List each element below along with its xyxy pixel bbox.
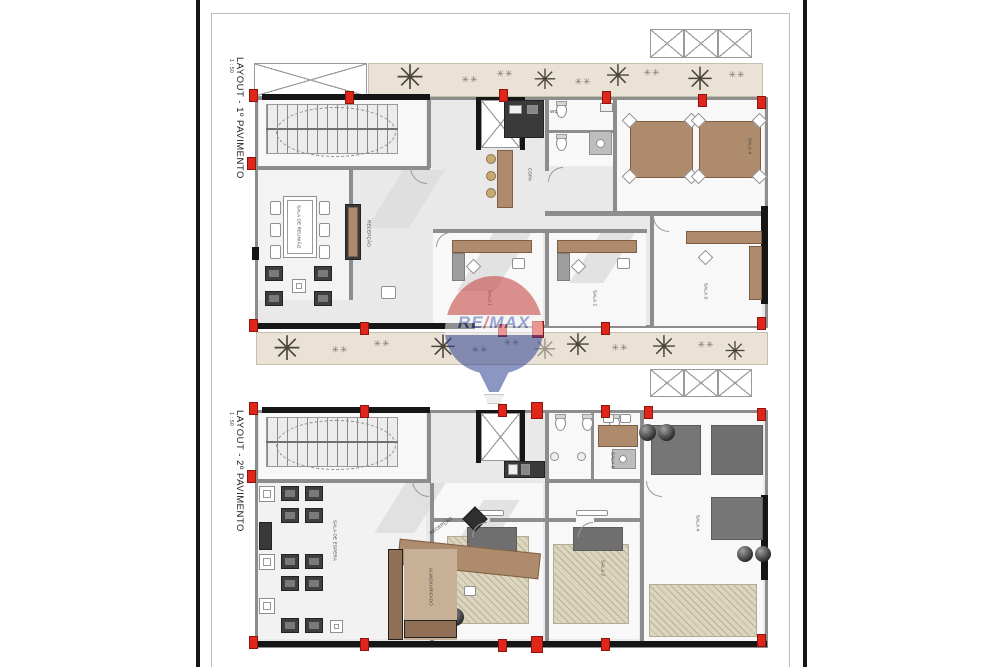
- roof-xbox: [650, 369, 684, 397]
- desk: [749, 246, 762, 300]
- shrub-icons: ✳✳: [461, 76, 478, 85]
- column-marker: [249, 89, 258, 102]
- plan1-title-block: LAYOUT - 1º PAVIMENTO 1 : 50: [228, 57, 245, 179]
- tree-icon: ✳: [687, 63, 714, 95]
- pouf: [737, 546, 753, 562]
- shelf: [576, 510, 608, 516]
- roof-xbox: [650, 29, 684, 58]
- logo-re: RE: [458, 313, 484, 332]
- column-marker: [345, 91, 354, 104]
- chair: [319, 223, 330, 237]
- column-marker: [531, 636, 543, 653]
- room-label: SALA 4: [747, 138, 752, 154]
- tree-icon: ✳: [396, 61, 425, 95]
- chair: [620, 414, 631, 423]
- armchair: [305, 508, 323, 523]
- shrub-icons: ✳✳: [728, 71, 745, 80]
- column-marker: [249, 319, 258, 332]
- appliance-icon: [521, 464, 530, 475]
- left-black-bar: [196, 0, 200, 667]
- chair: [270, 201, 281, 215]
- room-label: WC: [550, 110, 558, 115]
- tree-icon: ✳: [533, 66, 556, 94]
- tree-icon: ✳: [724, 338, 746, 364]
- wall: [255, 166, 430, 170]
- room-label: SALA 3: [610, 452, 615, 468]
- column-marker: [602, 91, 611, 104]
- room-label: COPA: [527, 168, 532, 181]
- armchair: [281, 618, 299, 633]
- shrub-icons: ✳✳: [496, 70, 513, 79]
- sink-icon: [508, 464, 518, 475]
- cabinet-row: [404, 620, 457, 638]
- column-marker: [698, 94, 707, 107]
- drain-icon: [619, 455, 627, 463]
- armchair: [314, 291, 332, 306]
- desk: [686, 231, 762, 244]
- roof-xbox: [684, 29, 718, 58]
- wall: [490, 518, 576, 522]
- grey-table-block: [711, 425, 763, 475]
- chair: [319, 201, 330, 215]
- grey-table-block: [711, 497, 763, 540]
- armchair: [381, 286, 396, 299]
- roof-xbox: [718, 29, 752, 58]
- column-marker: [757, 634, 766, 647]
- shrub-icons: ✳✳: [643, 69, 660, 78]
- sink-icon: [577, 452, 586, 461]
- sink-icon: [600, 103, 613, 112]
- copa-counter: [497, 150, 513, 208]
- side-table: [259, 598, 275, 614]
- wall: [545, 97, 549, 171]
- work-table: [630, 121, 693, 178]
- stair-path-arc: [276, 107, 396, 157]
- room-label: SALA DE ESPERA: [332, 520, 337, 561]
- wall: [427, 410, 431, 483]
- wall: [640, 410, 644, 644]
- coffee-table: [292, 279, 306, 293]
- roof-xbox: [718, 369, 752, 397]
- right-black-bar: [803, 0, 807, 667]
- armchair: [281, 576, 299, 591]
- room-label: SALA 2: [600, 560, 605, 576]
- wall: [433, 229, 647, 233]
- wall: [650, 216, 654, 328]
- room-label: SALA 3: [703, 283, 708, 299]
- tree-icon: ✳: [605, 62, 630, 92]
- column-marker: [757, 96, 766, 109]
- armchair: [305, 486, 323, 501]
- column-marker: [247, 470, 256, 483]
- rug: [553, 544, 629, 624]
- side-chair: [617, 258, 630, 269]
- remax-watermark: RE/MAX: [443, 276, 545, 406]
- wall: [427, 97, 431, 168]
- room-label: SALA DE REUNIÃO: [296, 205, 301, 249]
- plan2-title-block: LAYOUT - 2º PAVIMENTO 1 : 50: [228, 410, 245, 532]
- desk: [598, 425, 638, 447]
- armchair: [265, 266, 283, 281]
- logo-max: MAX: [489, 313, 530, 332]
- stool-icon: [486, 154, 496, 164]
- column-marker: [249, 402, 258, 415]
- column-marker: [757, 408, 766, 421]
- plan1-title: LAYOUT - 1º PAVIMENTO: [234, 57, 245, 179]
- stool-icon: [486, 171, 496, 181]
- remax-logo-text: RE/MAX: [443, 313, 545, 333]
- armchair: [305, 618, 323, 633]
- armchair: [281, 486, 299, 501]
- sink-icon: [550, 452, 559, 461]
- pouf: [639, 424, 656, 441]
- room-label: SALA 4: [695, 515, 700, 531]
- wall: [545, 233, 549, 326]
- armchair: [265, 291, 283, 306]
- column-marker: [757, 317, 766, 330]
- side-chair: [512, 258, 525, 269]
- column-marker: [498, 639, 507, 652]
- column-marker: [601, 405, 610, 418]
- elevator: [481, 413, 520, 461]
- column-marker: [249, 636, 258, 649]
- chair: [270, 245, 281, 259]
- chair: [319, 245, 330, 259]
- column-marker: [360, 405, 369, 418]
- pouf: [755, 546, 771, 562]
- column-marker: [247, 157, 256, 170]
- shrub-icons: ✳✳: [331, 346, 348, 355]
- column-marker: [601, 322, 610, 335]
- desk: [557, 240, 637, 253]
- wall: [594, 518, 644, 522]
- armchair: [281, 554, 299, 569]
- balloon-skirt: [474, 368, 514, 392]
- room-label: RECEPÇÃO: [366, 220, 371, 247]
- shrub-icons: ✳✳: [574, 78, 591, 87]
- room-label: ALMOXARIFADO: [428, 568, 433, 606]
- armchair: [281, 508, 299, 523]
- floorplan-sheet: LAYOUT - 1º PAVIMENTO 1 : 50 LAYOUT - 2º…: [0, 0, 1000, 667]
- drain-icon: [596, 139, 605, 148]
- desk-return: [557, 253, 570, 281]
- column-marker: [360, 322, 369, 335]
- column-marker: [360, 638, 369, 651]
- chair: [270, 223, 281, 237]
- cabinet-wall: [388, 549, 403, 640]
- wall: [613, 97, 617, 215]
- shrub-icons: ✳✳: [611, 344, 628, 353]
- armchair: [305, 554, 323, 569]
- armchair: [314, 266, 332, 281]
- side-table: [259, 486, 275, 502]
- column-marker: [601, 638, 610, 651]
- room-label: SALA 2: [592, 290, 597, 306]
- armchair: [305, 576, 323, 591]
- stool-icon: [486, 188, 496, 198]
- shrub-icons: ✳✳: [373, 340, 390, 349]
- desk: [452, 240, 532, 253]
- column-marker: [499, 89, 508, 102]
- tree-icon: ✳: [273, 332, 302, 366]
- balloon-basket-icon: [484, 394, 504, 404]
- shrub-icons: ✳✳: [697, 341, 714, 350]
- rug: [649, 584, 757, 637]
- black-wall: [262, 407, 430, 413]
- roof-xbox: [684, 369, 718, 397]
- coffee-table: [330, 620, 343, 633]
- elevator-wall: [520, 411, 525, 463]
- tree-icon: ✳: [651, 333, 676, 363]
- black-wall: [257, 641, 767, 647]
- stair-path-arc: [276, 420, 396, 470]
- cooktop-icon: [527, 105, 538, 114]
- column-marker: [644, 406, 653, 419]
- black-wall: [252, 247, 259, 260]
- pouf: [658, 424, 675, 441]
- black-wall: [761, 206, 768, 304]
- wall: [545, 479, 644, 483]
- sink-icon: [509, 105, 522, 114]
- tree-icon: ✳: [565, 331, 590, 361]
- wall: [255, 479, 430, 483]
- sofa: [259, 522, 272, 550]
- chair: [464, 586, 476, 596]
- wall: [545, 410, 549, 483]
- side-table: [259, 554, 275, 570]
- plan2-title: LAYOUT - 2º PAVIMENTO: [234, 410, 245, 532]
- wall: [545, 483, 549, 641]
- reception-desk: [348, 207, 358, 257]
